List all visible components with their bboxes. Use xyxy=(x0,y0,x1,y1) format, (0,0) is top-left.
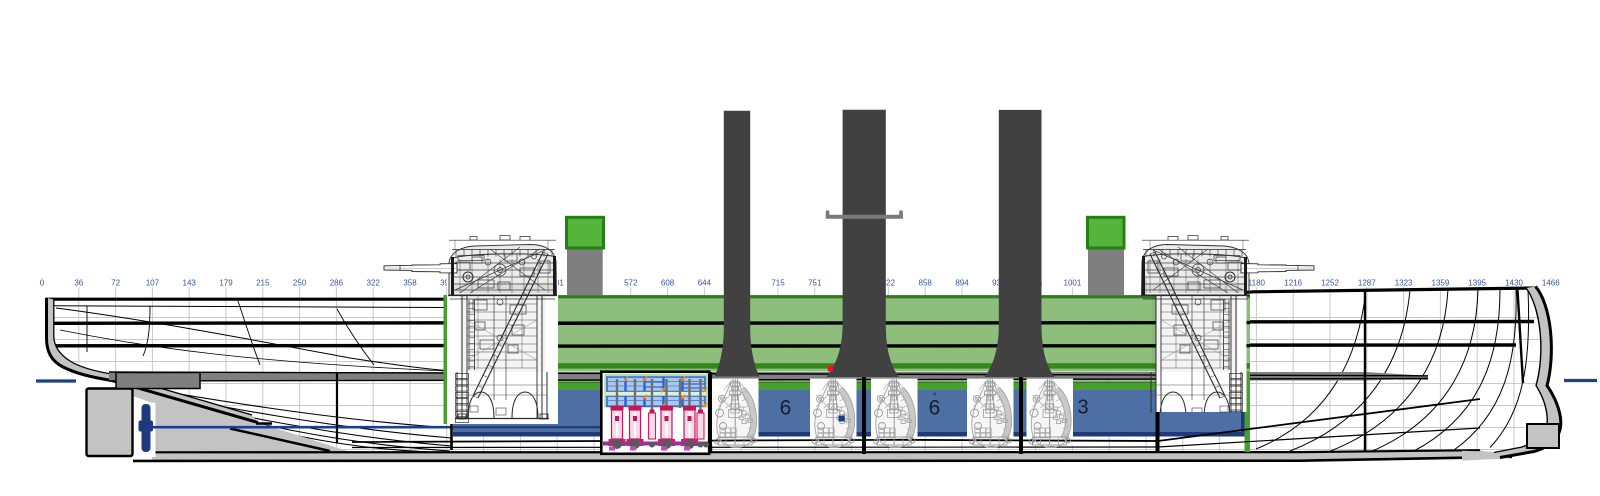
svg-text:143: 143 xyxy=(183,278,197,287)
svg-text:179: 179 xyxy=(219,278,233,287)
svg-text:1252: 1252 xyxy=(1321,278,1339,287)
svg-text:6: 6 xyxy=(929,397,941,420)
svg-text:644: 644 xyxy=(698,278,712,287)
svg-text:1216: 1216 xyxy=(1284,278,1302,287)
svg-text:215: 215 xyxy=(256,278,270,287)
svg-text:1466: 1466 xyxy=(1542,278,1560,287)
svg-text:1323: 1323 xyxy=(1395,278,1413,287)
svg-text:358: 358 xyxy=(403,278,417,287)
svg-text:572: 572 xyxy=(624,278,638,287)
svg-text:36: 36 xyxy=(74,278,83,287)
svg-text:1001: 1001 xyxy=(1064,278,1082,287)
svg-text:322: 322 xyxy=(367,278,381,287)
svg-text:0: 0 xyxy=(40,278,45,287)
svg-text:286: 286 xyxy=(330,278,344,287)
svg-text:107: 107 xyxy=(146,278,160,287)
svg-text:751: 751 xyxy=(808,278,822,287)
svg-text:608: 608 xyxy=(661,278,675,287)
svg-text:72: 72 xyxy=(111,278,120,287)
svg-text:1430: 1430 xyxy=(1505,278,1523,287)
svg-text:1395: 1395 xyxy=(1468,278,1486,287)
svg-text:894: 894 xyxy=(955,278,969,287)
svg-text:250: 250 xyxy=(293,278,307,287)
svg-text:1359: 1359 xyxy=(1432,278,1450,287)
svg-text:715: 715 xyxy=(771,278,785,287)
svg-text:3: 3 xyxy=(1077,397,1088,419)
svg-text:1287: 1287 xyxy=(1358,278,1376,287)
svg-text:858: 858 xyxy=(919,278,933,287)
svg-text:1180: 1180 xyxy=(1248,278,1266,287)
svg-text:6: 6 xyxy=(780,397,792,420)
